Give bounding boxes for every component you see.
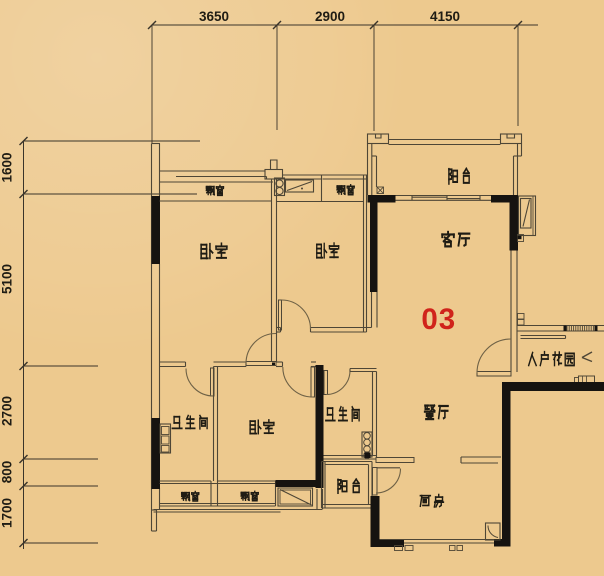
svg-text:800: 800 — [0, 461, 15, 484]
svg-text:5100: 5100 — [0, 264, 15, 294]
svg-text:2700: 2700 — [0, 396, 15, 426]
svg-text:1700: 1700 — [0, 498, 15, 528]
svg-text:03: 03 — [421, 303, 456, 336]
svg-text:2900: 2900 — [315, 9, 345, 24]
svg-text:4150: 4150 — [430, 9, 460, 24]
svg-text:1600: 1600 — [0, 152, 15, 182]
svg-text:3650: 3650 — [199, 9, 229, 24]
